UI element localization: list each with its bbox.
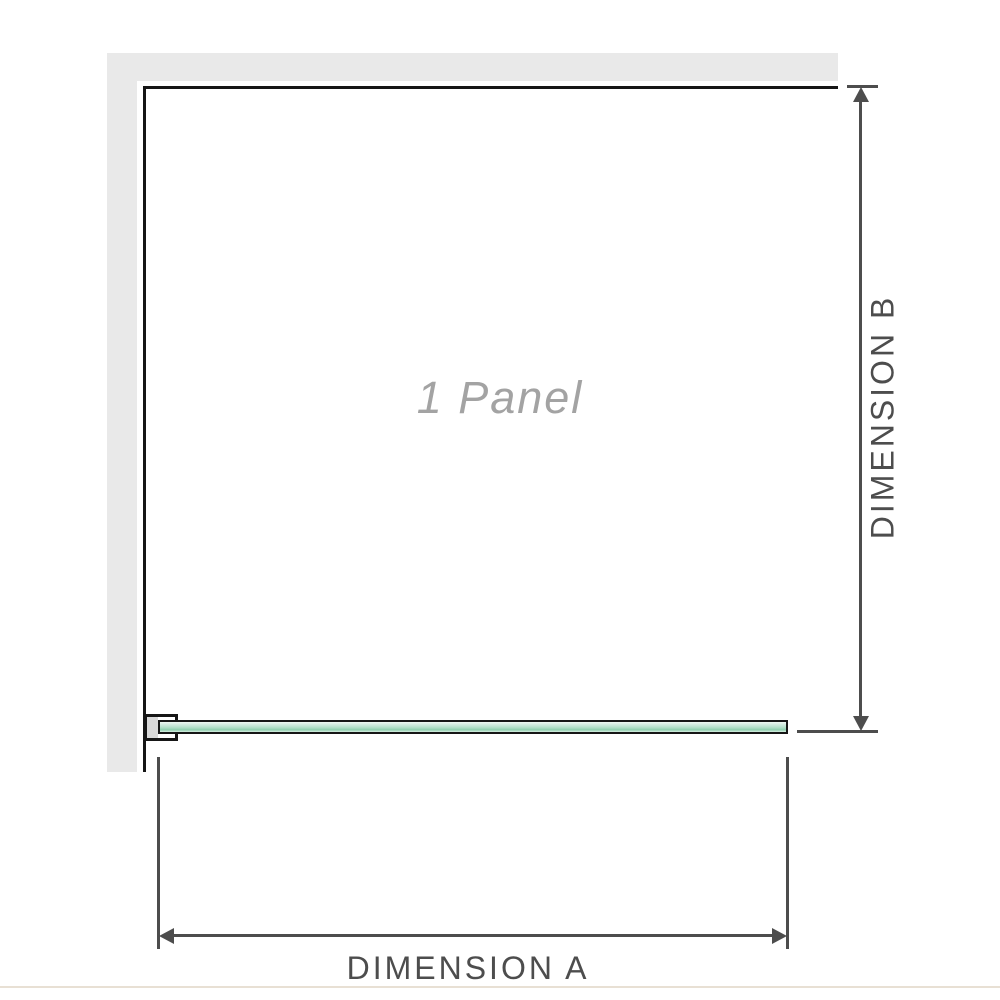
bracket-shim <box>147 717 158 738</box>
panel-outline-left <box>143 86 146 772</box>
panel-outline-top <box>143 86 838 89</box>
arrow-up-icon <box>853 87 869 102</box>
dimension-a-right-extension <box>786 757 789 949</box>
arrow-right-icon <box>772 928 787 944</box>
wall-top <box>107 53 838 81</box>
image-bottom-edge-line <box>0 986 1000 988</box>
arrow-down-icon <box>853 716 869 731</box>
panel-count-label: 1 Panel <box>417 372 584 424</box>
dimension-b-line <box>859 99 862 719</box>
shower-panel-diagram: 1 Panel DIMENSION B DIMENSION A <box>0 0 1000 1000</box>
dimension-a-line <box>171 934 775 937</box>
wall-left <box>107 53 137 772</box>
dimension-a-label: DIMENSION A <box>347 950 590 987</box>
arrow-left-icon <box>159 928 174 944</box>
dimension-a-left-extension <box>157 757 160 949</box>
dimension-b-label: DIMENSION B <box>865 295 902 540</box>
glass-panel <box>158 720 788 734</box>
